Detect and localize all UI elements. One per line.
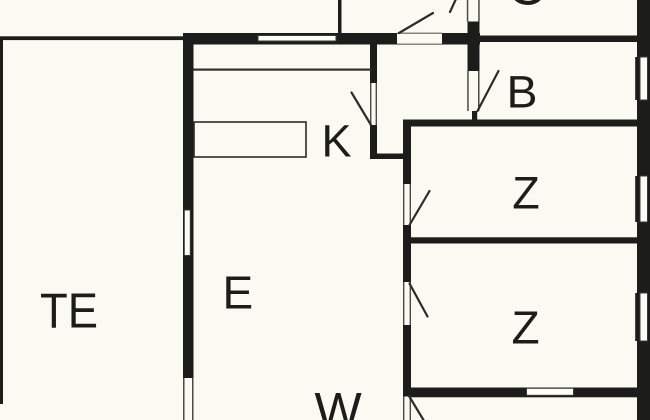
svg-text:B: B — [507, 67, 538, 118]
svg-text:E: E — [223, 267, 254, 319]
svg-text:W: W — [315, 382, 363, 420]
svg-text:Z: Z — [512, 168, 540, 219]
svg-text:TE: TE — [40, 285, 98, 339]
svg-text:Z: Z — [512, 302, 540, 354]
svg-text:K: K — [322, 116, 352, 167]
svg-text:C: C — [507, 0, 546, 17]
